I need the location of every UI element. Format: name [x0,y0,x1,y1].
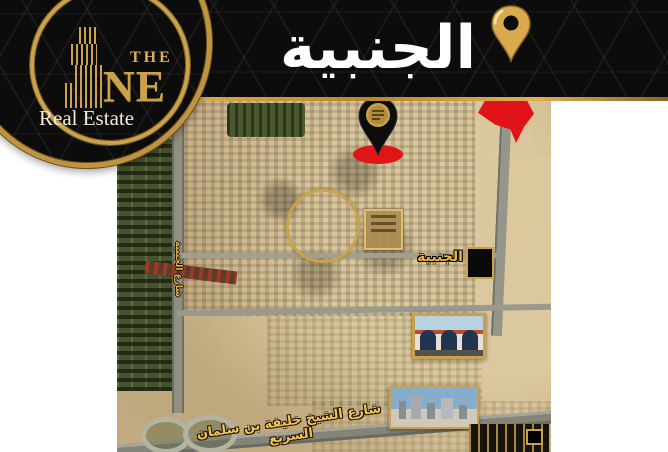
side-street-label: شارع الجنبية [173,241,183,305]
gold-location-pin-icon [490,5,532,63]
plot-info-box [364,209,403,250]
black-landmark-square-small [526,429,543,445]
arch-shape [441,330,457,350]
gold-circle-highlight [286,189,360,263]
map-area-label: الجنبية [414,249,466,265]
page-title: الجنبية [258,2,498,94]
flyer-canvas: الجنبية [0,0,668,452]
arch-shape [420,330,436,350]
logo-word-ne: NE [103,61,166,112]
satellite-map: الجنبية شارع الجنبية شارع الشيخ خليفة بن… [117,101,551,452]
black-landmark-square [466,247,494,279]
skyscraper-icon [75,65,105,83]
photo-base [415,350,483,356]
mall-photo-inset [412,313,486,359]
arch-shape [462,330,478,350]
tower-shape [441,398,453,419]
green-patch [227,103,305,137]
skyscraper-icon [79,27,99,44]
skyscraper-icon [65,83,105,108]
dark-building-complex [469,424,549,452]
tower-shape [427,403,435,419]
skyscraper-icon [71,44,97,65]
tower-shape [411,396,421,419]
company-map-pin-icon [356,101,400,157]
tower-shape [459,405,467,419]
logo-tagline: Real Estate [39,106,134,131]
